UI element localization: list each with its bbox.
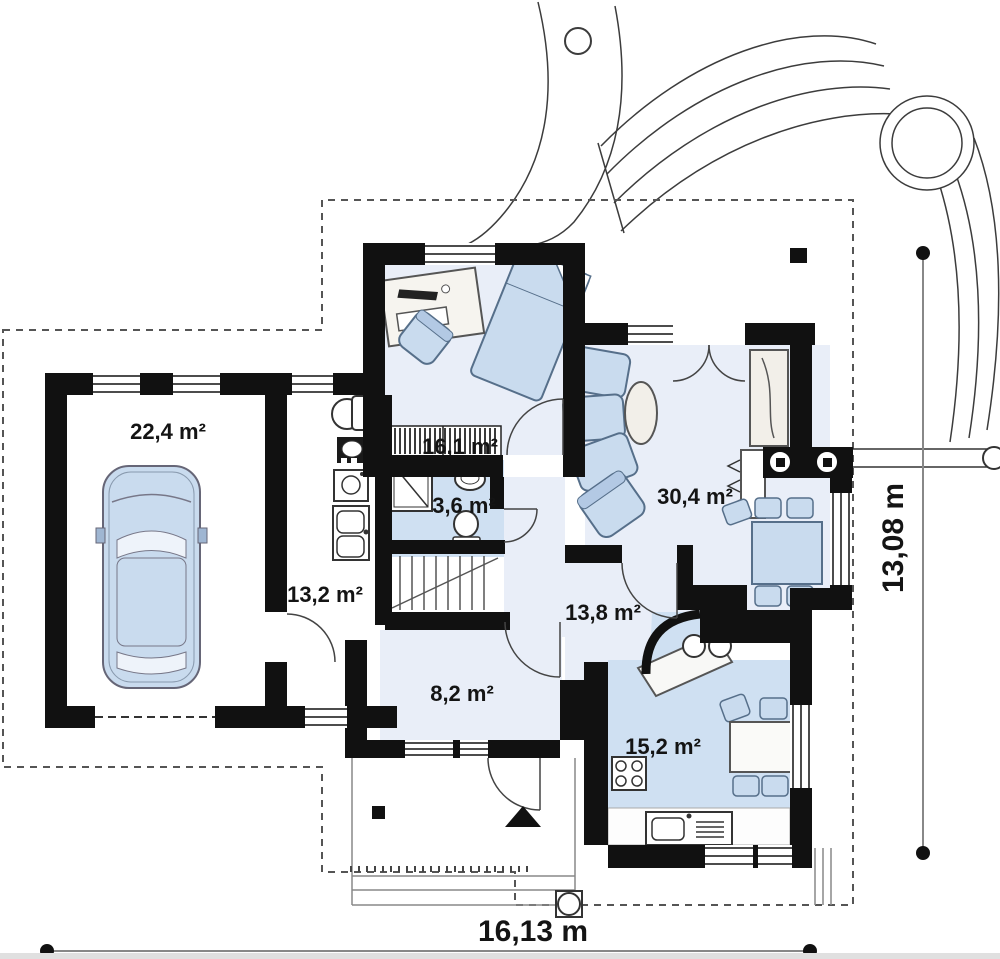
height-dimension-label: 13,08 m: [877, 483, 910, 593]
room-label-garage: 22,4 m²: [130, 419, 206, 444]
window: [173, 373, 220, 395]
porch-column: [556, 891, 582, 917]
garage-door: [95, 706, 215, 728]
kitchen-sink: [646, 812, 732, 845]
room-label-utility: 13,2 m²: [287, 582, 363, 607]
room-label-bathroom: 3,6 m²: [432, 493, 496, 518]
window: [460, 740, 488, 758]
page-edge-bar: [0, 953, 1000, 959]
site-square-marker: [790, 248, 807, 263]
room-label-living-room: 30,4 m²: [657, 484, 733, 509]
pergola-post-circle: [983, 447, 1000, 469]
coffee-table: [625, 382, 657, 444]
car-mirror-left: [96, 528, 105, 543]
hall-arm-floor: [504, 477, 565, 637]
tv-cabinet: [750, 350, 788, 446]
car: [96, 466, 207, 688]
dining-table: [752, 522, 822, 584]
terrace-door-window: [830, 493, 852, 585]
kitchen-table: [730, 722, 792, 772]
kitchen-counter: [608, 808, 790, 845]
window: [93, 373, 140, 395]
window: [305, 706, 347, 728]
window: [758, 845, 792, 868]
window: [405, 740, 453, 758]
stove: [612, 757, 646, 790]
car-mirror-right: [198, 528, 207, 543]
room-label-bedroom: 16,1 m²: [422, 434, 498, 459]
floor-plan-canvas: 22,4 m² 16,1 m² 3,6 m² 13,2 m² 30,4 m² 1…: [0, 0, 1000, 959]
driveway-turning-circle: [880, 96, 974, 190]
room-label-kitchen: 15,2 m²: [625, 734, 701, 759]
window: [628, 323, 673, 345]
floor-plan-page: 22,4 m² 16,1 m² 3,6 m² 13,2 m² 30,4 m² 1…: [0, 0, 1000, 959]
window: [425, 243, 495, 265]
porch-post-marker: [372, 806, 385, 819]
room-label-hall: 13,8 m²: [565, 600, 641, 625]
washing-machine: [334, 470, 368, 501]
window: [705, 845, 753, 868]
window: [292, 373, 333, 395]
path-post-circle: [565, 28, 591, 54]
width-dimension-label: 16,13 m: [478, 915, 588, 948]
room-label-entry: 8,2 m²: [430, 681, 494, 706]
doorway-floor: [620, 545, 680, 565]
window: [790, 705, 812, 788]
laundry-sinks: [333, 506, 369, 560]
